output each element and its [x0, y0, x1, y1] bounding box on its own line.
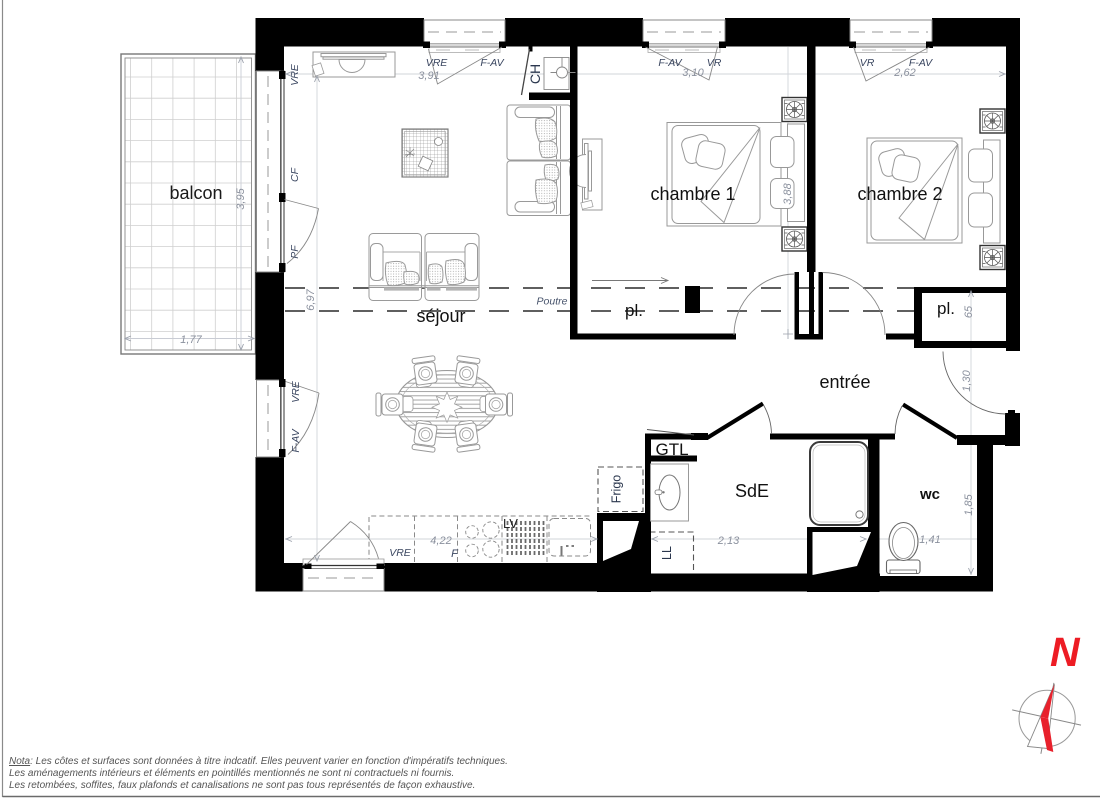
svg-text:F-AV: F-AV	[658, 57, 682, 69]
svg-text:VRE: VRE	[289, 63, 301, 86]
svg-text:1,77: 1,77	[180, 334, 202, 346]
svg-text:LV: LV	[503, 516, 518, 531]
svg-text:Nota: Les côtes et surfaces so: Nota: Les côtes et surfaces sont données…	[9, 756, 508, 767]
svg-text:séjour: séjour	[416, 306, 465, 326]
svg-text:SdE: SdE	[735, 481, 769, 501]
svg-text:3,88: 3,88	[782, 182, 794, 204]
svg-text:4,22: 4,22	[430, 535, 451, 547]
svg-text:Frigo: Frigo	[610, 475, 624, 504]
svg-text:VR: VR	[860, 57, 875, 69]
svg-text:F-AV: F-AV	[480, 57, 504, 69]
svg-text:Les retombées, soffites, faux: Les retombées, soffites, faux plafonds e…	[9, 780, 475, 791]
svg-text:pl.: pl.	[625, 301, 643, 320]
svg-text:Les aménagements intérieurs et: Les aménagements intérieurs et éléments …	[9, 768, 454, 779]
svg-text:chambre 1: chambre 1	[650, 184, 735, 204]
svg-text:3,91: 3,91	[418, 70, 439, 82]
svg-text:pl.: pl.	[937, 299, 955, 318]
svg-text:N: N	[1050, 629, 1081, 675]
svg-text:VR: VR	[707, 57, 722, 69]
svg-text:1,41: 1,41	[919, 534, 940, 546]
svg-text:wc: wc	[919, 486, 940, 503]
svg-text:1,30: 1,30	[961, 369, 973, 391]
svg-text:CF: CF	[289, 167, 301, 182]
svg-text:F-AV: F-AV	[290, 428, 302, 452]
svg-text:chambre 2: chambre 2	[857, 184, 942, 204]
svg-text:CH: CH	[527, 64, 543, 84]
svg-text:LL: LL	[660, 546, 674, 560]
svg-text:Poutre: Poutre	[537, 296, 568, 308]
svg-text:3,95: 3,95	[235, 187, 247, 209]
svg-text:3,10: 3,10	[682, 67, 704, 79]
svg-text:65: 65	[963, 305, 975, 318]
svg-text:VRE: VRE	[426, 57, 449, 69]
svg-text:entrée: entrée	[819, 372, 870, 392]
svg-text:2,62: 2,62	[893, 67, 915, 79]
svg-text:balcon: balcon	[169, 183, 222, 203]
svg-text:VRE: VRE	[290, 380, 302, 403]
svg-text:VRE: VRE	[389, 547, 412, 559]
svg-text:PF: PF	[289, 245, 301, 259]
svg-text:GTL: GTL	[655, 440, 688, 459]
svg-text:6,97: 6,97	[305, 288, 317, 310]
svg-text:2,13: 2,13	[717, 535, 740, 547]
svg-text:1,85: 1,85	[963, 493, 975, 515]
